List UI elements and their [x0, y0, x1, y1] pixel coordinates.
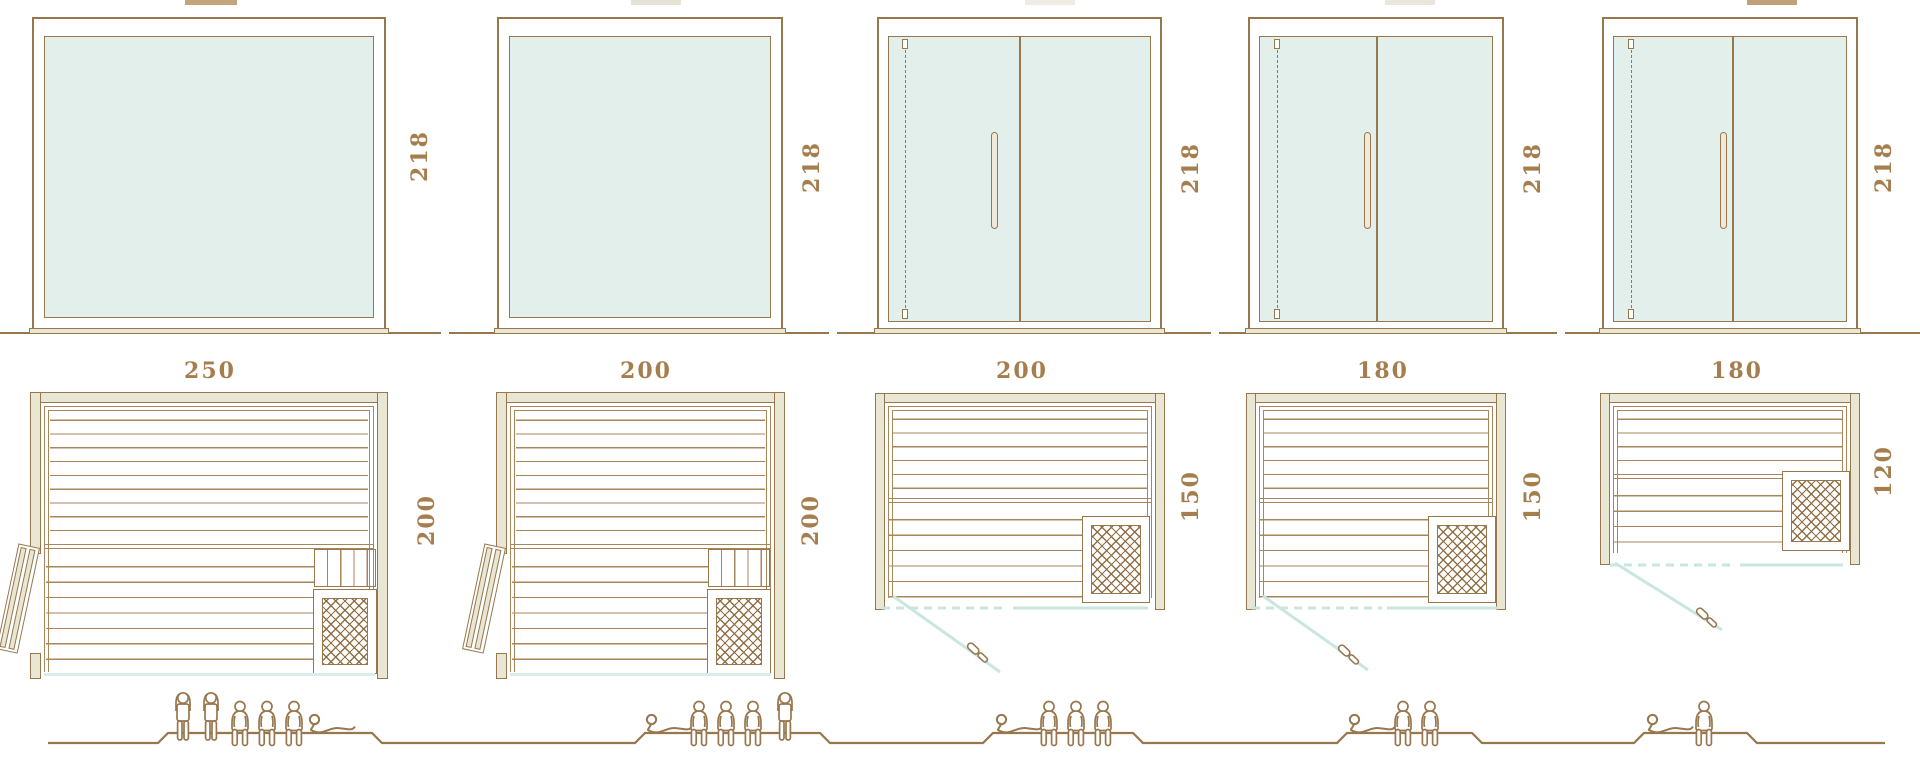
person-sitting-icon — [286, 702, 302, 746]
front-frame — [877, 17, 1162, 330]
hinge-icon — [902, 39, 908, 49]
plan-wall-right — [1850, 393, 1860, 565]
door-handle-icon — [966, 642, 989, 664]
bench-edge — [1259, 498, 1493, 503]
person-sitting-icon — [1395, 702, 1411, 746]
person-sitting-icon — [232, 702, 248, 746]
bench-edge — [510, 544, 771, 549]
front-frame — [497, 17, 783, 330]
depth-dimension: 120 — [1871, 435, 1897, 507]
person-lying-icon — [310, 715, 355, 732]
heater — [313, 589, 377, 674]
sauna-unit-4: 218 180 150 — [0, 0, 1920, 770]
wall-liner — [510, 406, 771, 672]
door-panel — [474, 549, 501, 650]
open-door-leaf — [0, 543, 40, 653]
person-sitting-icon — [1095, 702, 1111, 746]
glass-door-pair — [1259, 36, 1493, 322]
person-sitting-icon — [745, 702, 761, 746]
heater-lattice-icon — [1091, 525, 1141, 594]
glass-panel — [509, 36, 771, 318]
hinge-icon — [1628, 39, 1634, 49]
person-sitting-icon — [1068, 702, 1084, 746]
depth-dimension: 200 — [798, 484, 824, 556]
heater-lattice-icon — [716, 598, 762, 665]
person-lying-icon — [1648, 715, 1693, 732]
person-sitting-icon — [691, 702, 707, 746]
front-frame — [32, 17, 386, 330]
lower-bench — [889, 505, 1082, 598]
glass-front-line — [510, 673, 771, 676]
open-door-line — [1263, 596, 1368, 670]
hinge-icon — [1628, 309, 1634, 319]
bench-edge — [1613, 474, 1847, 479]
floor-plan — [30, 392, 388, 679]
bench-edge — [888, 498, 1152, 503]
floor-plan — [1600, 393, 1860, 573]
door-handle-icon — [1720, 132, 1727, 229]
door-split-line — [1019, 37, 1021, 321]
hinge-dashed-line — [1631, 40, 1632, 318]
height-dimension: 218 — [407, 120, 433, 192]
lower-bench — [512, 552, 708, 668]
height-dimension: 218 — [1178, 132, 1204, 204]
plan-wall-left — [30, 392, 41, 554]
open-door-line — [1615, 563, 1722, 630]
depth-dimension: 200 — [414, 484, 440, 556]
door-swing — [1240, 585, 1520, 695]
heater — [1782, 471, 1850, 551]
hinge-icon — [902, 309, 908, 319]
height-dimension: 218 — [799, 131, 825, 203]
sauna-unit-1: 218 250 200 — [0, 0, 1920, 770]
plan-wall-top — [496, 392, 785, 403]
heater-lattice-icon — [1791, 480, 1841, 542]
capacity-ground-line — [48, 733, 1885, 743]
upper-bench — [50, 407, 368, 548]
door-swing — [870, 585, 1170, 695]
door-handle-icon — [1695, 607, 1718, 629]
person-lying-icon — [997, 715, 1042, 732]
plan-wall-right — [377, 392, 388, 679]
plan-wall-top — [1600, 393, 1860, 403]
open-door-line — [893, 596, 1000, 672]
wall-liner — [514, 410, 767, 672]
door-split-line — [1376, 37, 1378, 321]
person-sitting-icon — [259, 702, 275, 746]
wall-liner — [1617, 410, 1843, 553]
open-door-leaf — [462, 543, 506, 653]
cropped-artifact — [631, 0, 681, 5]
hinge-icon — [1274, 309, 1280, 319]
width-dimension: 200 — [982, 358, 1062, 384]
door-split-line — [1732, 37, 1734, 321]
heater-lattice-icon — [322, 598, 368, 665]
lower-bench — [46, 552, 314, 668]
person-lying-icon — [1350, 715, 1395, 732]
cropped-artifact — [1747, 0, 1797, 5]
glass-panel — [44, 36, 374, 318]
depth-dimension: 150 — [1520, 460, 1546, 532]
upper-bench — [516, 407, 765, 548]
person-lying-icon — [647, 715, 692, 732]
heater — [1428, 516, 1496, 603]
lower-bench — [1260, 505, 1428, 598]
sauna-size-diagram: 218 250 200 218 — [0, 0, 1920, 770]
wall-liner — [892, 410, 1148, 598]
elevation-ground-line — [1565, 332, 1920, 334]
wall-liner — [888, 406, 1152, 598]
wall-liner — [1613, 406, 1847, 553]
width-dimension: 180 — [1697, 358, 1777, 384]
upper-bench — [1264, 406, 1488, 498]
person-sitting-icon — [1696, 702, 1712, 746]
cropped-artifact — [185, 0, 237, 5]
door-panel — [466, 547, 493, 648]
door-swing — [1595, 540, 1875, 660]
glass-door-pair — [1613, 36, 1847, 322]
plan-wall-left — [875, 393, 885, 610]
plan-wall-top — [1246, 393, 1506, 403]
door-panel — [8, 549, 35, 650]
person-sitting-icon — [718, 702, 734, 746]
hinge-dashed-line — [905, 40, 906, 318]
person-sitting-icon — [1422, 702, 1438, 746]
heater — [1082, 516, 1150, 603]
sauna-unit-3: 218 200 150 — [0, 0, 1920, 770]
plan-wall-left — [496, 392, 507, 554]
upper-bench — [1618, 406, 1842, 474]
door-handle-icon — [1337, 644, 1360, 666]
plan-wall-left — [1600, 393, 1610, 565]
floor-plan — [875, 393, 1165, 613]
plan-wall-right — [774, 392, 785, 679]
elevation-ground-line — [1219, 332, 1557, 334]
hinge-dashed-line — [1277, 40, 1278, 318]
front-frame — [1248, 17, 1504, 330]
door-handle-icon — [991, 132, 998, 229]
floor-plan — [496, 392, 785, 679]
plan-wall-right — [1155, 393, 1165, 610]
front-frame — [1602, 17, 1858, 330]
cropped-artifact — [1385, 0, 1435, 5]
person-sitting-icon — [1041, 702, 1057, 746]
bench-step — [708, 549, 770, 587]
width-dimension: 200 — [606, 358, 686, 384]
floor-plan — [1246, 393, 1506, 613]
height-dimension: 218 — [1871, 131, 1897, 203]
glass-front-line — [44, 673, 375, 676]
bench-edge — [44, 544, 374, 549]
elevation-ground-line — [0, 332, 441, 334]
wall-liner — [48, 410, 370, 672]
bench-step — [314, 549, 376, 587]
heater-lattice-icon — [1437, 525, 1487, 594]
sauna-unit-5: 218 180 120 — [0, 0, 1920, 770]
height-dimension: 218 — [1520, 132, 1546, 204]
wall-liner — [44, 406, 374, 672]
upper-bench — [893, 406, 1147, 498]
plan-wall-right — [1496, 393, 1506, 610]
wall-liner — [1259, 406, 1493, 598]
plan-wall-left-stub — [30, 653, 41, 679]
plan-wall-left — [1246, 393, 1256, 610]
door-panel — [0, 547, 27, 648]
capacity-row — [0, 688, 1920, 770]
plan-wall-top — [30, 392, 388, 403]
plan-wall-top — [875, 393, 1165, 403]
depth-dimension: 150 — [1178, 460, 1204, 532]
heater — [707, 589, 771, 674]
wall-liner — [1263, 410, 1489, 598]
elevation-ground-line — [449, 332, 829, 334]
sauna-unit-2: 218 200 200 — [0, 0, 1920, 770]
door-handle-icon — [1364, 132, 1371, 229]
hinge-icon — [1274, 39, 1280, 49]
lower-bench — [1614, 481, 1782, 553]
elevation-ground-line — [837, 332, 1211, 334]
width-dimension: 180 — [1343, 358, 1423, 384]
cropped-artifact — [1025, 0, 1075, 5]
plan-wall-left-stub — [496, 653, 507, 679]
width-dimension: 250 — [170, 358, 250, 384]
glass-door-pair — [888, 36, 1151, 322]
